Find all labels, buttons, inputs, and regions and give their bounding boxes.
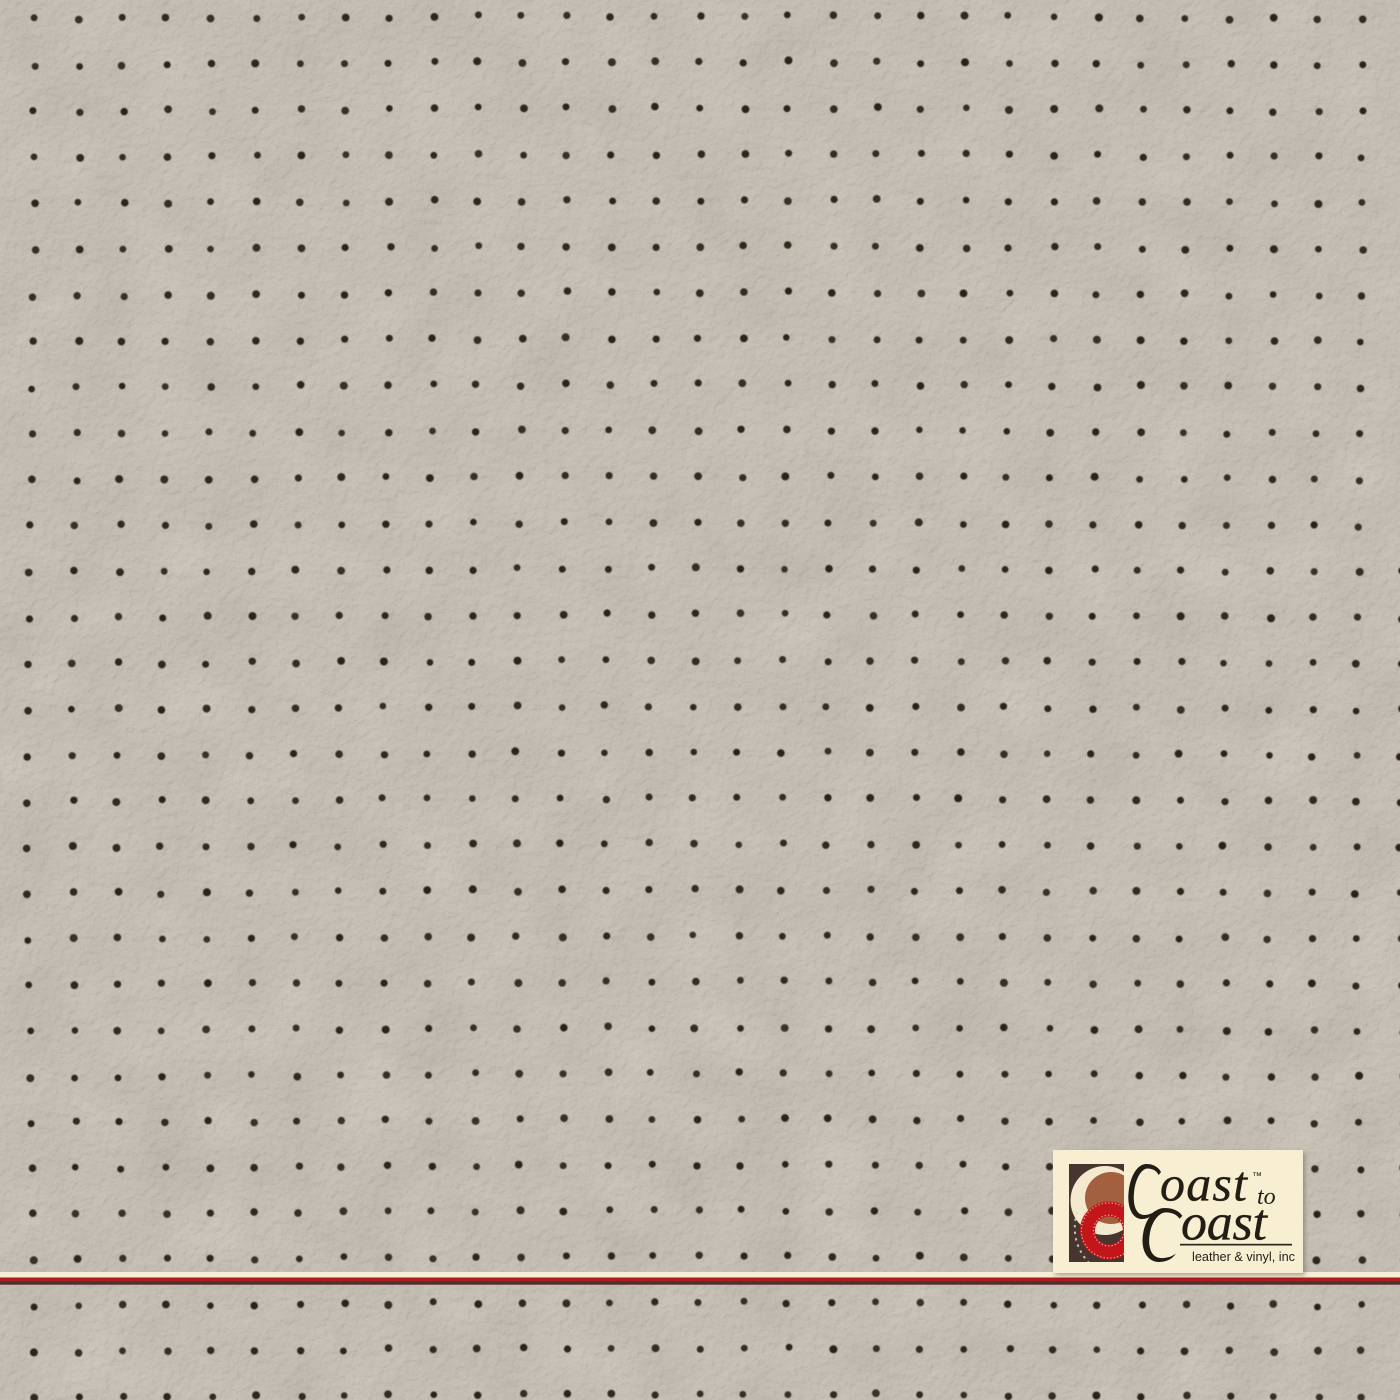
svg-text:oast: oast	[1181, 1195, 1269, 1252]
svg-text:leather & vinyl, inc: leather & vinyl, inc	[1192, 1250, 1295, 1264]
svg-text:™: ™	[1252, 1171, 1262, 1182]
